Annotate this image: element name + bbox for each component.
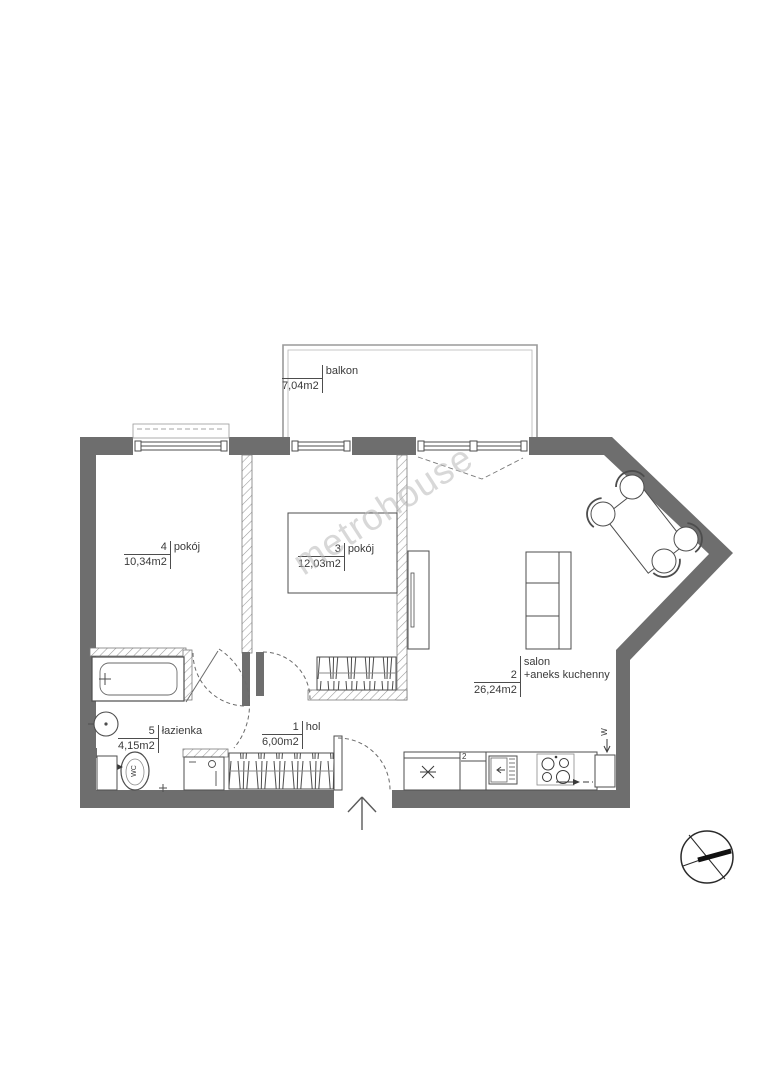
bathroom-niche (97, 756, 117, 790)
compass-icon (681, 831, 733, 883)
shaft-niche (595, 755, 615, 787)
tv-unit (408, 551, 429, 649)
balcony (283, 345, 537, 441)
room-number: 1 (262, 721, 302, 735)
room-number (282, 365, 322, 379)
door-leaf-entrance (334, 736, 342, 790)
room-area: 4,15m2 (118, 739, 158, 753)
door-arc-room3 (263, 652, 310, 699)
vent-arrow (604, 739, 610, 752)
room-label-lazienka: 5 łazienka 4,15m2 (118, 725, 202, 753)
kitchen (404, 739, 615, 790)
room-area: 10,34m2 (124, 555, 170, 569)
wc-label: WC (131, 765, 139, 777)
room-name: łazienka (158, 725, 202, 739)
oven-appliance (489, 756, 517, 784)
room-title: salon (520, 656, 610, 669)
toilet (113, 752, 167, 792)
room-label-room4: 4 pokój 10,34m2 (124, 541, 200, 569)
room-number: 5 (118, 725, 158, 739)
room-name: pokój (170, 541, 200, 555)
room-name: +aneks kuchenny (520, 669, 610, 683)
kitchen-cabinet-number: 2 (462, 753, 466, 761)
vent-symbol: W (601, 728, 609, 736)
room-area: 26,24m2 (474, 683, 520, 697)
room-number: 2 (474, 669, 520, 683)
room3-wardrobe (317, 657, 396, 690)
wall-stub-left (80, 748, 97, 758)
door-arc-room4 (193, 653, 246, 706)
room-label-hol: 1 hol 6,00m2 (262, 721, 320, 749)
washing-machine (184, 757, 224, 790)
room-label-balkon: balkon 7,04m2 (282, 365, 358, 393)
room-name: hol (302, 721, 321, 735)
door-arc-entrance (338, 738, 390, 790)
room-area: 6,00m2 (262, 735, 302, 749)
hall-wardrobe (229, 753, 334, 789)
bathtub (92, 657, 184, 701)
sofa-cabinet (526, 552, 571, 649)
floor-plan-drawing (0, 0, 763, 1080)
room-number: 4 (124, 541, 170, 555)
floor-plan: balkon 7,04m2 4 pokój 10,34m2 3 pokój 12… (0, 0, 763, 1080)
window-sill-1 (133, 424, 229, 438)
room-label-salon: salon 2 +aneks kuchenny 26,24m2 (474, 656, 610, 697)
room-name: balkon (322, 365, 358, 379)
door-leaf-room3 (256, 652, 264, 696)
room-area: 7,04m2 (282, 379, 322, 393)
